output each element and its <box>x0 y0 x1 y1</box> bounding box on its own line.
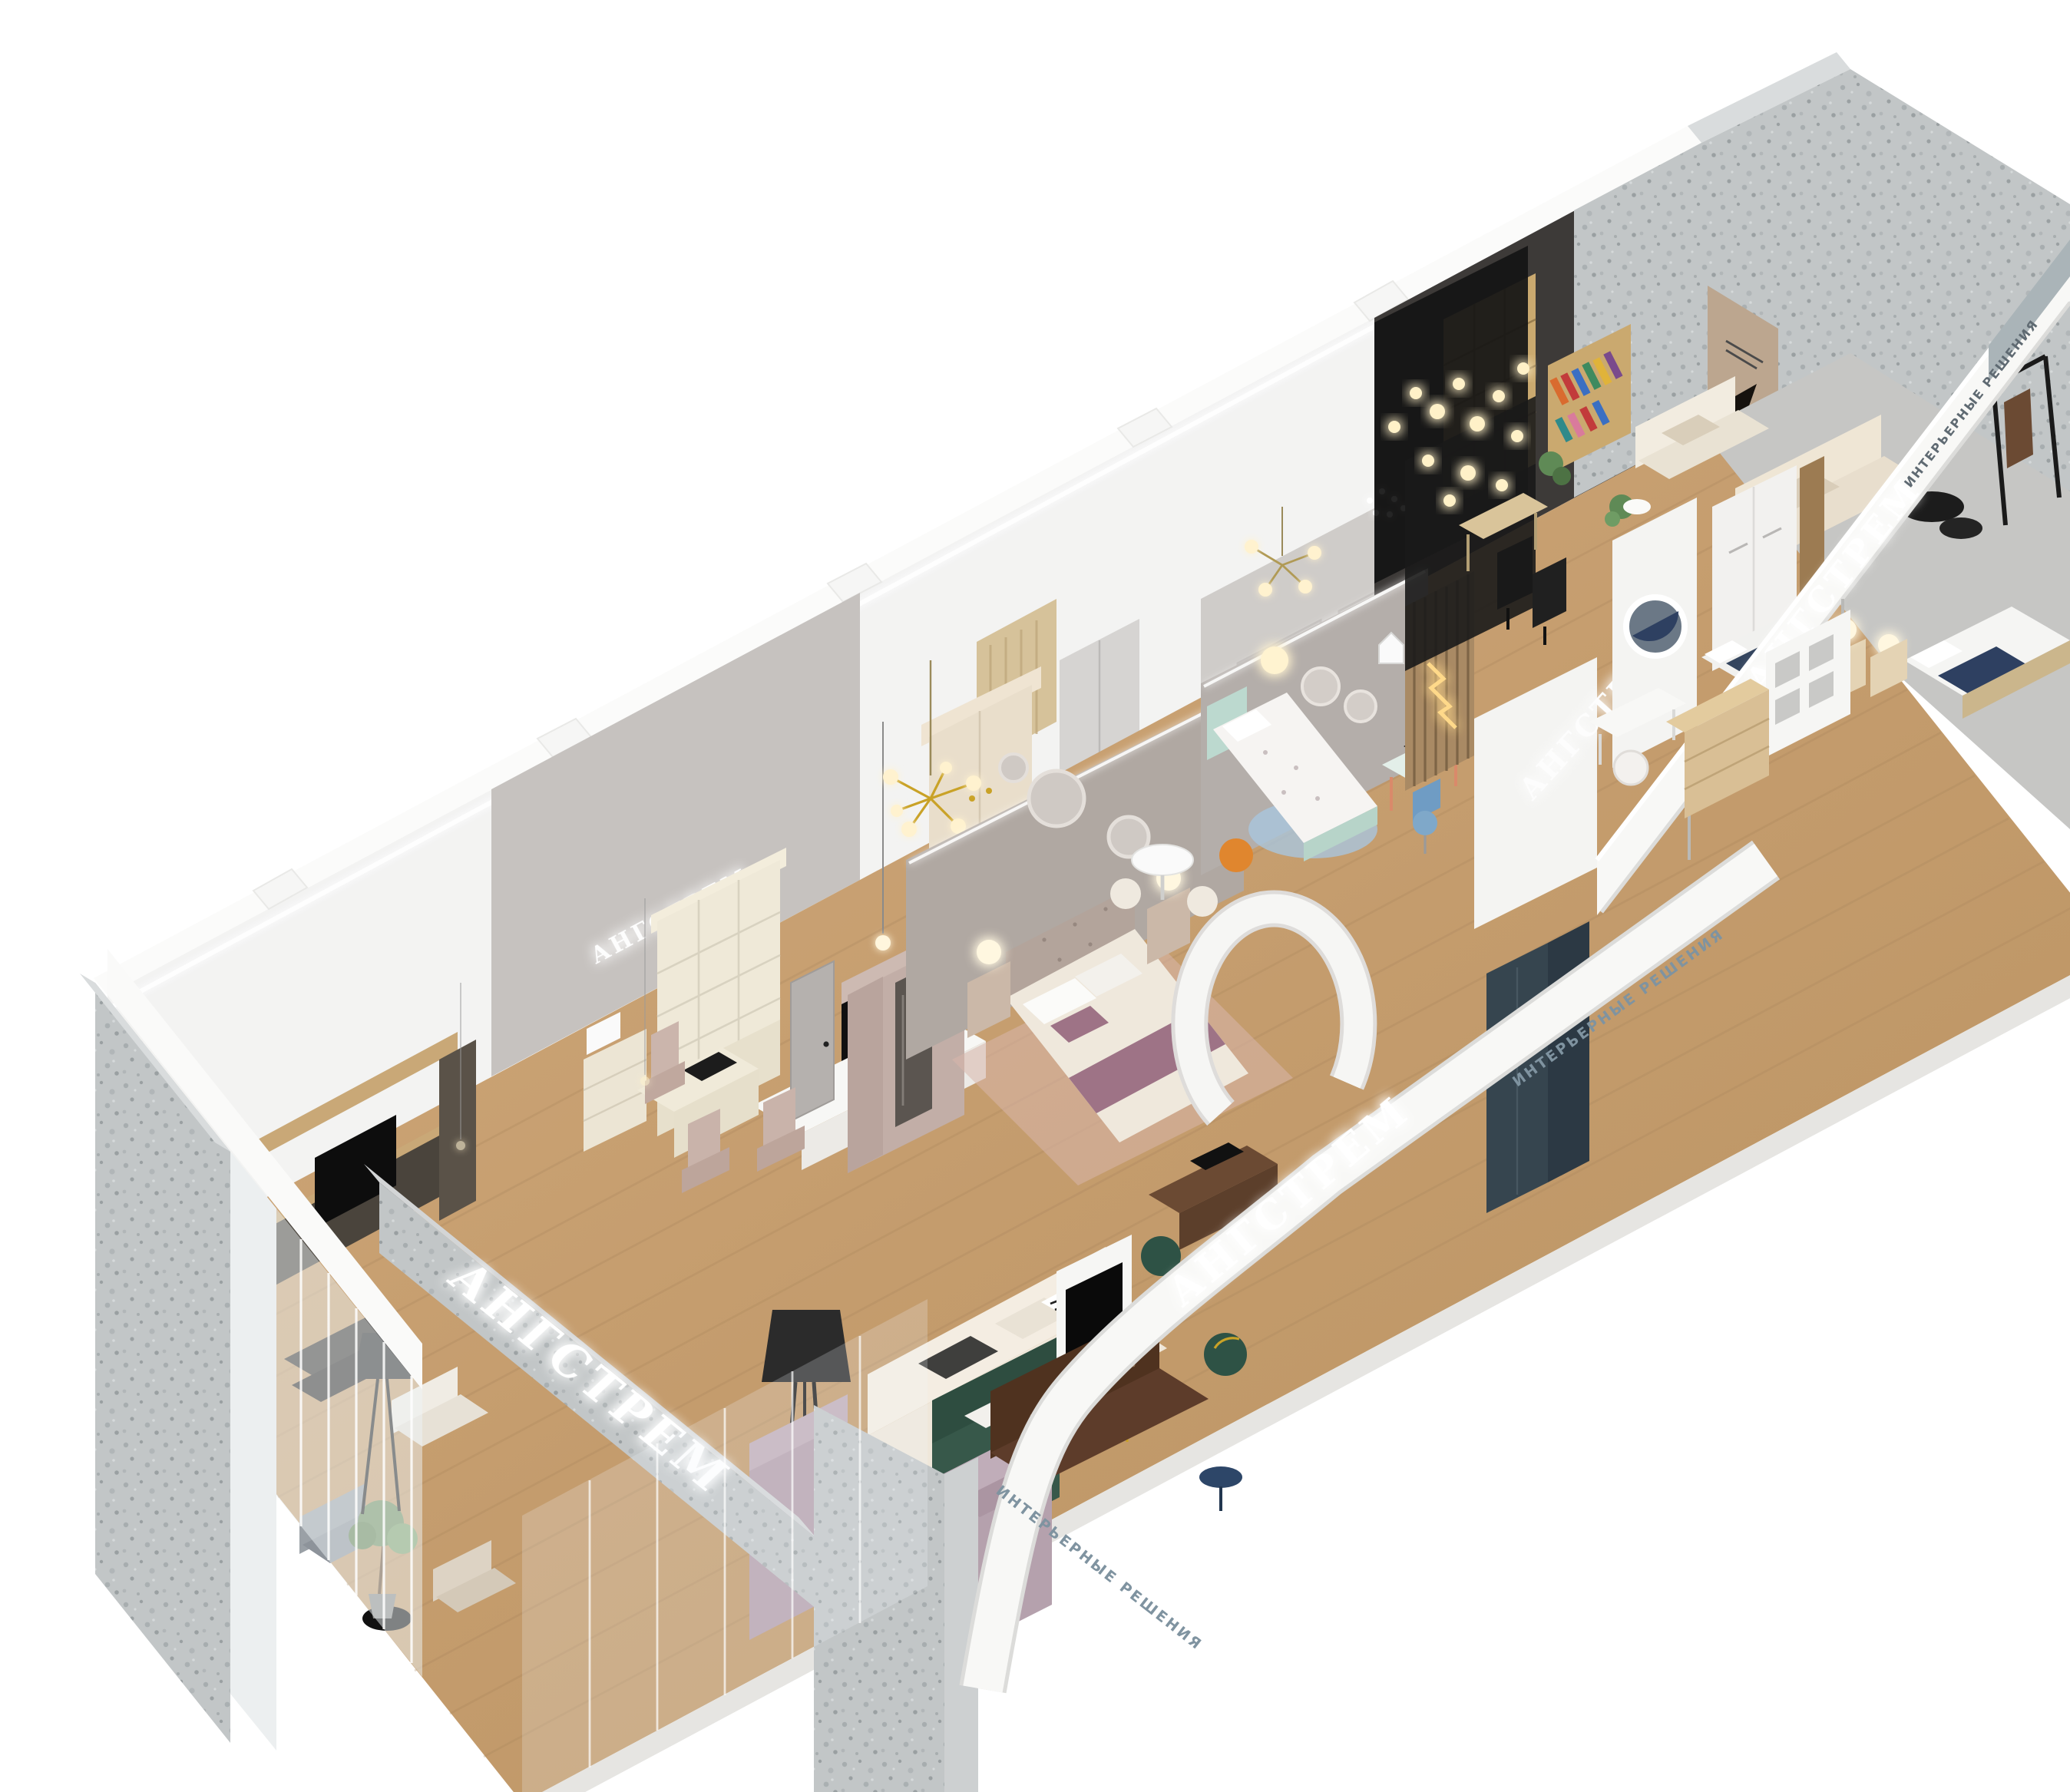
cylinder-side-table <box>1623 499 1651 514</box>
tub-chair-cream-2 <box>1187 886 1218 917</box>
rack-garment <box>2004 388 2033 468</box>
table-lamp-glow <box>977 940 1001 964</box>
tub-chair-cream-1 <box>1110 878 1141 909</box>
isometric-scene: АНГСТРЕМ <box>0 0 2070 1792</box>
kids-mirror-1 <box>1302 668 1339 705</box>
side-table-blue <box>1199 1466 1242 1511</box>
round-mirror-3 <box>1000 754 1027 782</box>
chair-white-tufted <box>1614 751 1648 785</box>
kids-mirror-2 <box>1345 691 1376 722</box>
showroom-render: АНГСТРЕМ <box>0 0 2070 1792</box>
black-nesting-table <box>1939 517 1982 539</box>
white-pillar <box>230 1152 276 1751</box>
round-mirror-1 <box>1029 771 1084 826</box>
wall-sconce-glow <box>1261 646 1288 674</box>
pouf-orange <box>1219 838 1253 872</box>
interior-door <box>791 961 834 1121</box>
